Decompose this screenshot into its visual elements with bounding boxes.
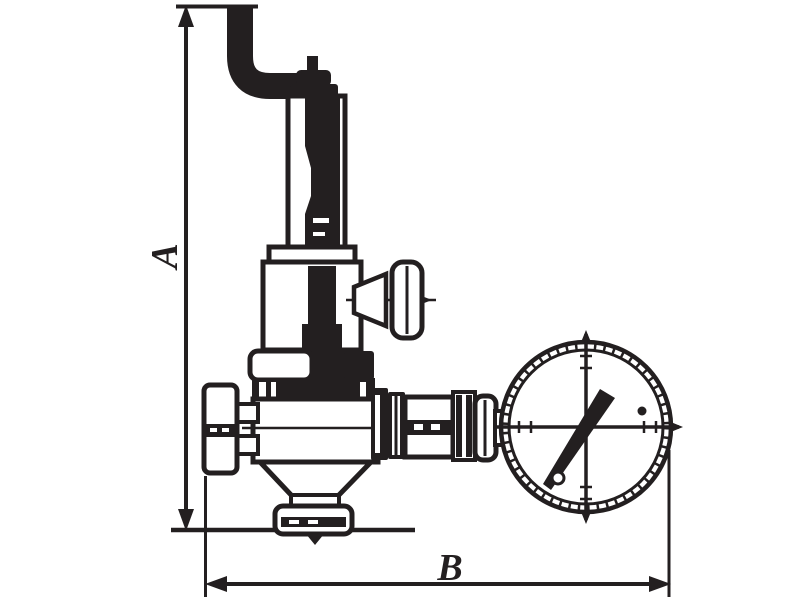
- ribbed-nut: [388, 392, 405, 459]
- adjusting-screw-tube: [288, 56, 345, 260]
- cap-nipple: [307, 56, 318, 72]
- pipe-tube: [240, 6, 298, 86]
- outlet-coupling: [371, 388, 521, 460]
- arrowhead-left-icon: [205, 576, 227, 592]
- dimension-b-label: B: [436, 547, 462, 589]
- outlet-flange-slot: [375, 395, 380, 453]
- needle-hub: [552, 472, 564, 484]
- valve-bonnet: [250, 351, 375, 401]
- pressure-gauge: [497, 330, 683, 524]
- bonnet-center-block: [310, 352, 346, 379]
- dimension-a-label: A: [144, 243, 186, 270]
- body-block: [253, 399, 378, 462]
- coupling-band: [407, 420, 451, 435]
- bonnet-right-block: [344, 351, 374, 380]
- spindle: [308, 266, 336, 324]
- body-taper: [260, 462, 371, 497]
- drain-spout: [306, 534, 324, 545]
- crosshair-tip-right: [672, 423, 683, 432]
- bonnet-union-nut: [250, 351, 312, 380]
- spring-housing: [263, 247, 361, 350]
- valve-dimensional-drawing: A B: [0, 0, 800, 598]
- crosshair-tip-top: [582, 330, 591, 341]
- ring-bar-2: [466, 395, 472, 457]
- supply-pipe-elbow: [234, 6, 298, 92]
- valve-body: [242, 399, 380, 545]
- spring-seat: [302, 324, 342, 348]
- technical-drawing: A B: [0, 0, 800, 598]
- dial-dot: [638, 407, 647, 416]
- cap-dome: [296, 70, 331, 86]
- arrowhead-down-icon: [178, 509, 194, 531]
- crosshair-tip-bottom: [582, 513, 591, 524]
- ring-bar-1: [456, 395, 462, 457]
